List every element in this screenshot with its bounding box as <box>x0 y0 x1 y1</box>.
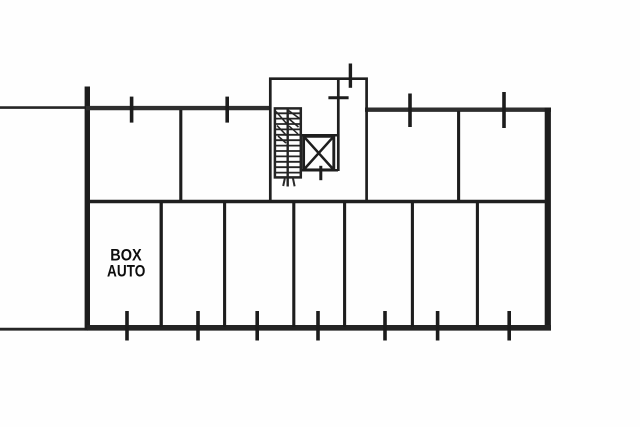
svg-text:AUTO: AUTO <box>107 262 145 281</box>
